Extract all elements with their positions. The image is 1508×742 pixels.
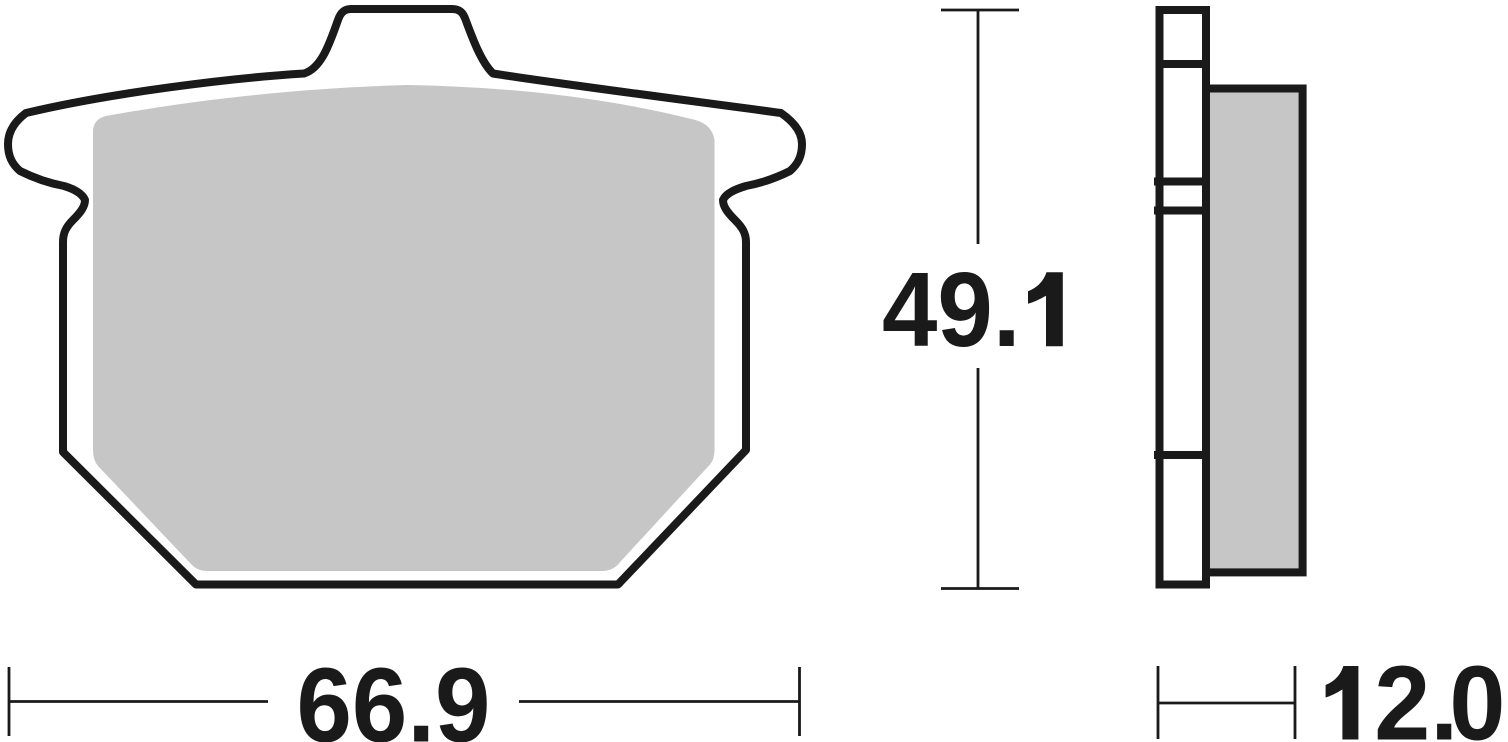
svg-text:66.9: 66.9 bbox=[297, 645, 491, 742]
svg-text:2.0: 2.0 bbox=[1374, 643, 1505, 742]
svg-text:49.: 49. bbox=[882, 250, 1021, 369]
